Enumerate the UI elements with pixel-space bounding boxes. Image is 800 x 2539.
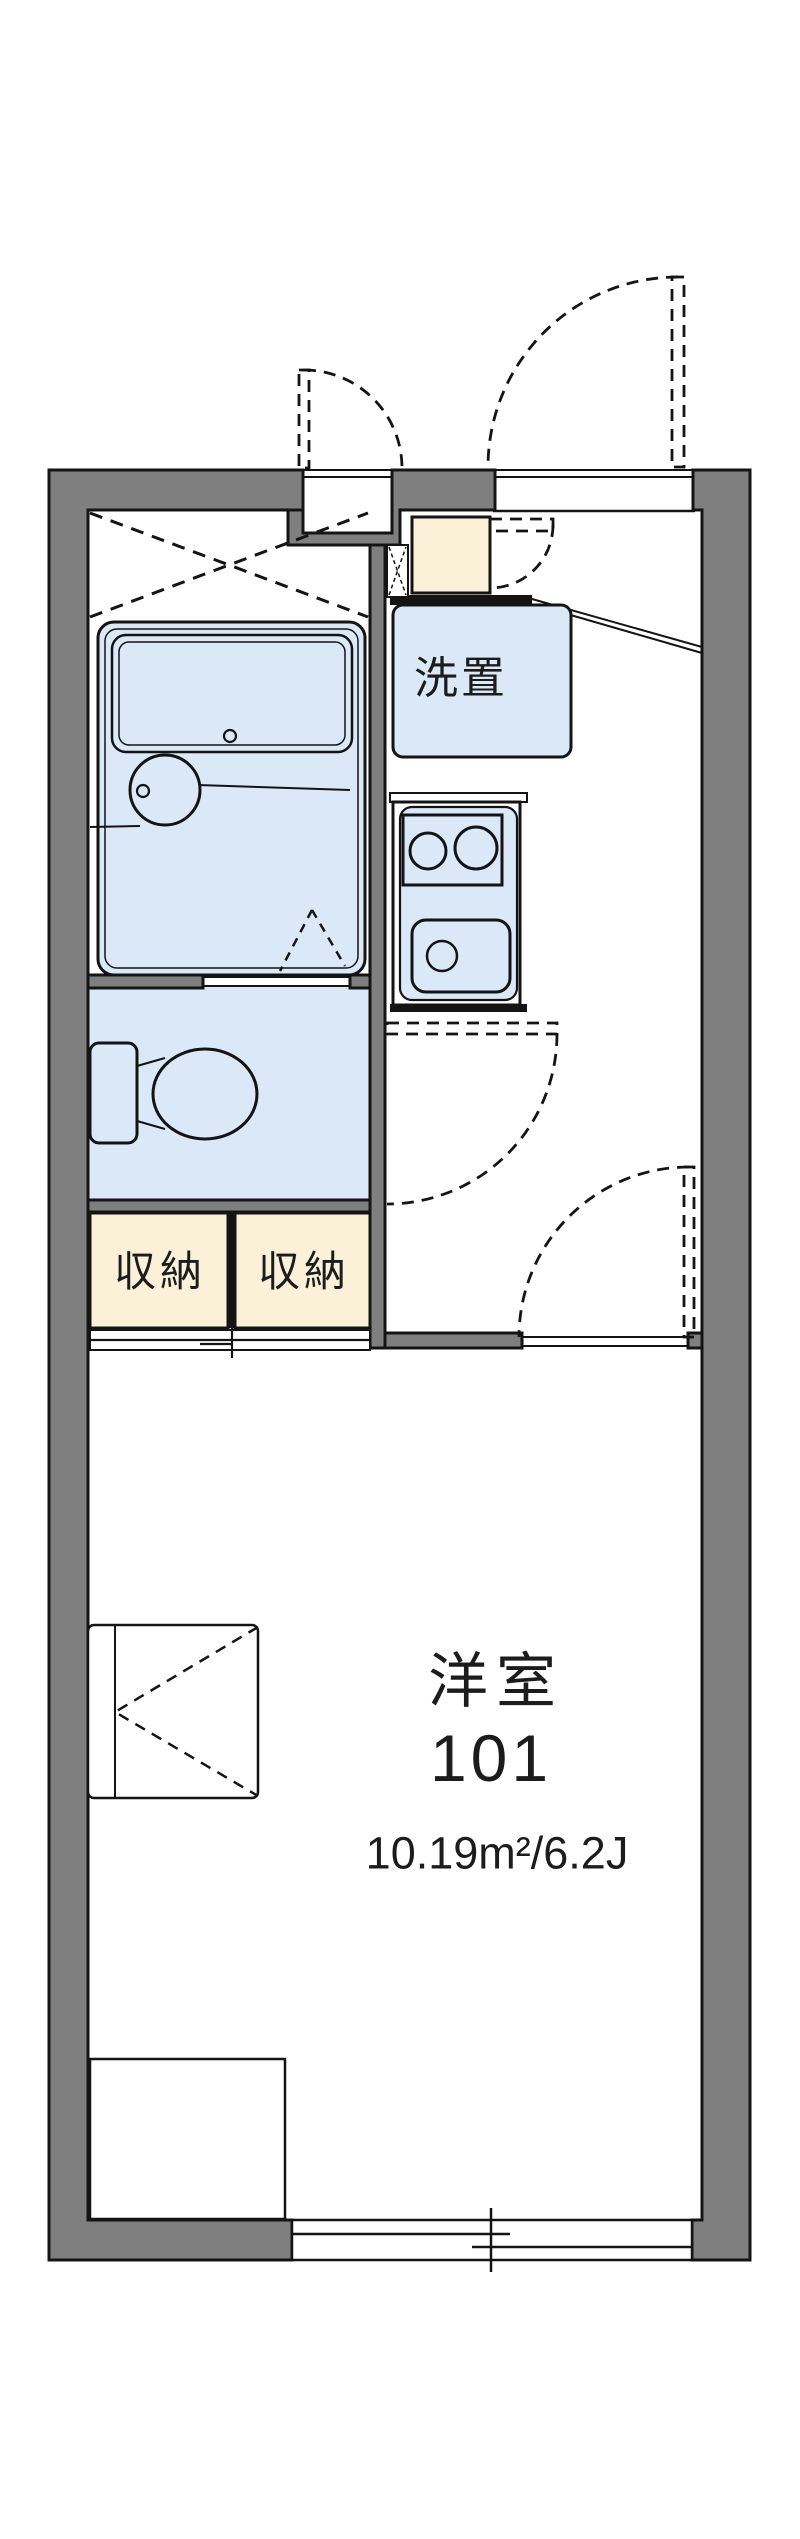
toilet-room-floor [86,987,374,1203]
washer-space-label: 洗置 [414,657,508,701]
storage-left-label: 収納 [114,1251,206,1293]
room-area-label: 10.19m²/6.2J [366,1831,629,1876]
wall-segment-toilet-closet [84,1200,383,1212]
pipe-space [387,545,408,597]
stove-burner-left [410,833,446,869]
wall-segment-corridor-bottom [371,1333,522,1348]
kitchen-bottom-bar [390,1004,527,1012]
washbasin [130,755,200,825]
bed [88,1625,258,1798]
shoe-cabinet [412,517,490,593]
room-name-label: 洋室 [428,1652,564,1712]
storage-right-label: 収納 [258,1251,350,1293]
wall-segment-bath-toilet-left [84,975,203,988]
wall-segment-central-divider [370,535,385,1348]
room-number-label: 101 [430,1725,552,1791]
storage-closet-divider [227,1213,235,1328]
floor-plan-page: 洗置 収納 収納 洋室 101 10.19m²/6.2J [0,0,800,2539]
kitchen-unit [390,793,527,1012]
wall-segment-right [692,470,750,2260]
stove-burner-right [455,827,497,869]
desk [90,2059,285,2219]
